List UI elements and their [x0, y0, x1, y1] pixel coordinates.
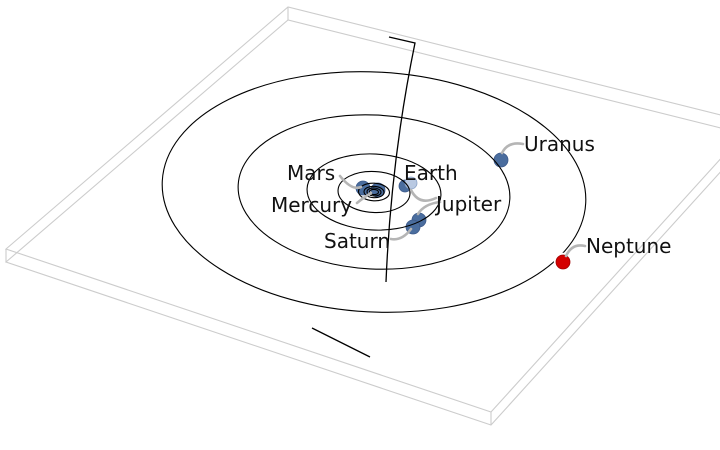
planet-label-neptune: Neptune — [586, 234, 671, 258]
trajectory-line-below-plane — [312, 328, 370, 357]
label-leader-neptune — [566, 245, 585, 256]
label-leader-uranus — [502, 143, 523, 153]
planet-label-saturn: Saturn — [324, 229, 390, 253]
planet-label-mercury: Mercury — [271, 193, 352, 217]
planet-dot-neptune — [556, 255, 570, 269]
planet-label-mars: Mars — [287, 161, 335, 185]
label-leader-earth — [411, 190, 436, 201]
planet-dot-uranus — [494, 153, 508, 167]
solar-system-figure: MarsMercuryEarthJupiterSaturnUranusNeptu… — [0, 0, 720, 450]
plane-box-top-face — [6, 7, 720, 412]
planet-label-earth: Earth — [404, 161, 458, 185]
planet-label-uranus: Uranus — [524, 132, 595, 156]
plane-box-bottom-face — [6, 20, 720, 425]
planet-label-jupiter: Jupiter — [434, 192, 502, 216]
figure-canvas: MarsMercuryEarthJupiterSaturnUranusNeptu… — [0, 0, 720, 450]
